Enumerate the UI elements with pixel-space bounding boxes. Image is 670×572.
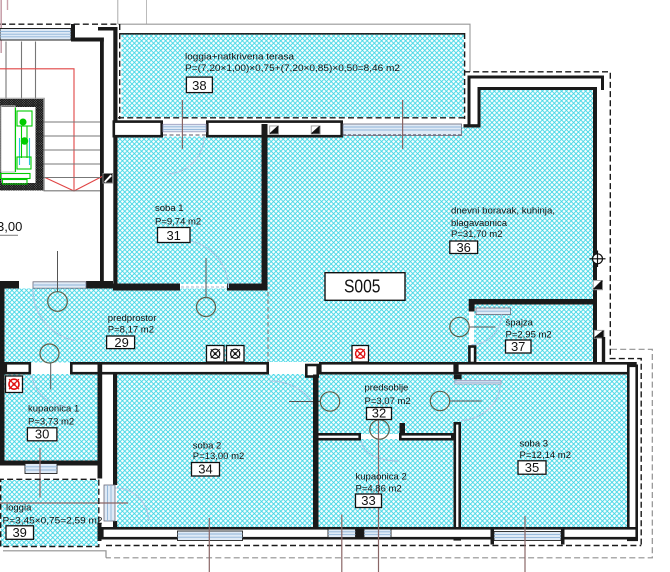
svg-text:P=(7,20×1,00)×0,75+(7,20×0,85): P=(7,20×1,00)×0,75+(7,20×0,85)×0,50=8,46… [185,63,400,74]
svg-text:kupaonica 2: kupaonica 2 [356,472,407,483]
svg-text:soba 3: soba 3 [520,438,549,449]
svg-text:loggia: loggia [6,503,32,514]
svg-text:predsoblje: predsoblje [365,383,409,394]
svg-text:38: 38 [192,78,206,93]
svg-text:kupaonica 1: kupaonica 1 [28,404,79,415]
svg-text:34: 34 [198,462,212,477]
svg-text:P=31,70 m2: P=31,70 m2 [451,229,503,240]
svg-text:37: 37 [511,339,525,354]
svg-text:predprostor: predprostor [108,313,157,324]
svg-text:špajza: špajza [506,318,534,329]
svg-text:P=9,74 m2: P=9,74 m2 [155,217,201,228]
svg-text:S005: S005 [344,275,381,296]
svg-text:soba 2: soba 2 [193,441,222,452]
svg-text:30: 30 [35,427,49,442]
svg-text:P=13,00 m2: P=13,00 m2 [193,451,245,462]
svg-text:29: 29 [114,335,128,350]
svg-text:39: 39 [12,525,26,540]
svg-text:33: 33 [361,493,375,508]
svg-text:35: 35 [525,460,539,475]
svg-text:soba 1: soba 1 [155,203,184,214]
svg-text:36: 36 [456,240,470,255]
svg-text:31: 31 [166,228,180,243]
svg-text:loggia+natkrivena terasa: loggia+natkrivena terasa [185,52,295,63]
svg-text:blagavaonica: blagavaonica [451,218,508,229]
svg-text:dnevni boravak, kuhinja,: dnevni boravak, kuhinja, [451,206,555,217]
svg-text:32: 32 [372,406,386,421]
svg-text:3,00: 3,00 [0,219,22,234]
